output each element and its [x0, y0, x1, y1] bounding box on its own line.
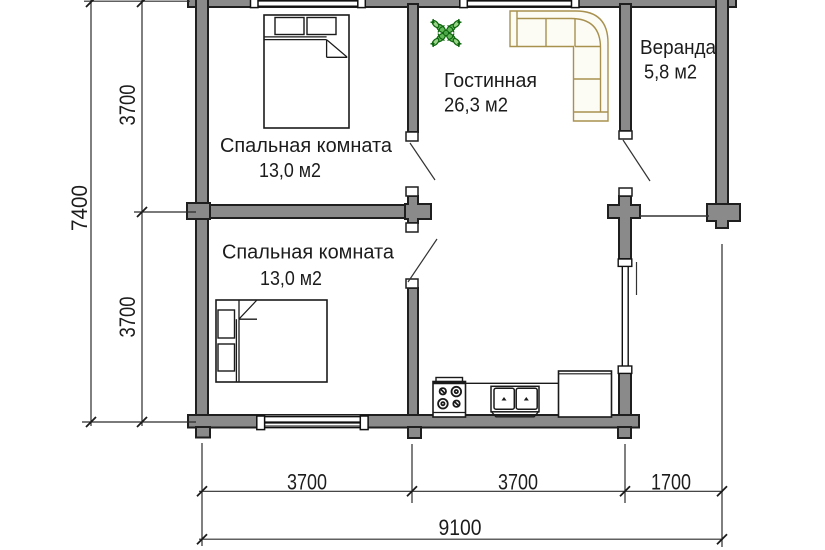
svg-text:Спальная комната: Спальная комната [220, 135, 393, 157]
svg-text:13,0 м2: 13,0 м2 [259, 160, 321, 182]
svg-text:7400: 7400 [67, 185, 92, 231]
svg-text:3700: 3700 [498, 470, 538, 495]
svg-text:3700: 3700 [287, 470, 327, 495]
svg-text:1700: 1700 [651, 470, 691, 495]
svg-text:3700: 3700 [115, 85, 140, 126]
svg-text:5,8 м2: 5,8 м2 [644, 62, 697, 84]
svg-text:Спальная комната: Спальная комната [222, 242, 395, 264]
svg-text:Гостинная: Гостинная [444, 70, 537, 92]
svg-text:13,0 м2: 13,0 м2 [260, 268, 322, 290]
svg-text:26,3 м2: 26,3 м2 [444, 95, 508, 117]
svg-text:3700: 3700 [115, 297, 140, 338]
svg-text:9100: 9100 [439, 515, 482, 540]
svg-text:Веранда: Веранда [640, 37, 717, 59]
